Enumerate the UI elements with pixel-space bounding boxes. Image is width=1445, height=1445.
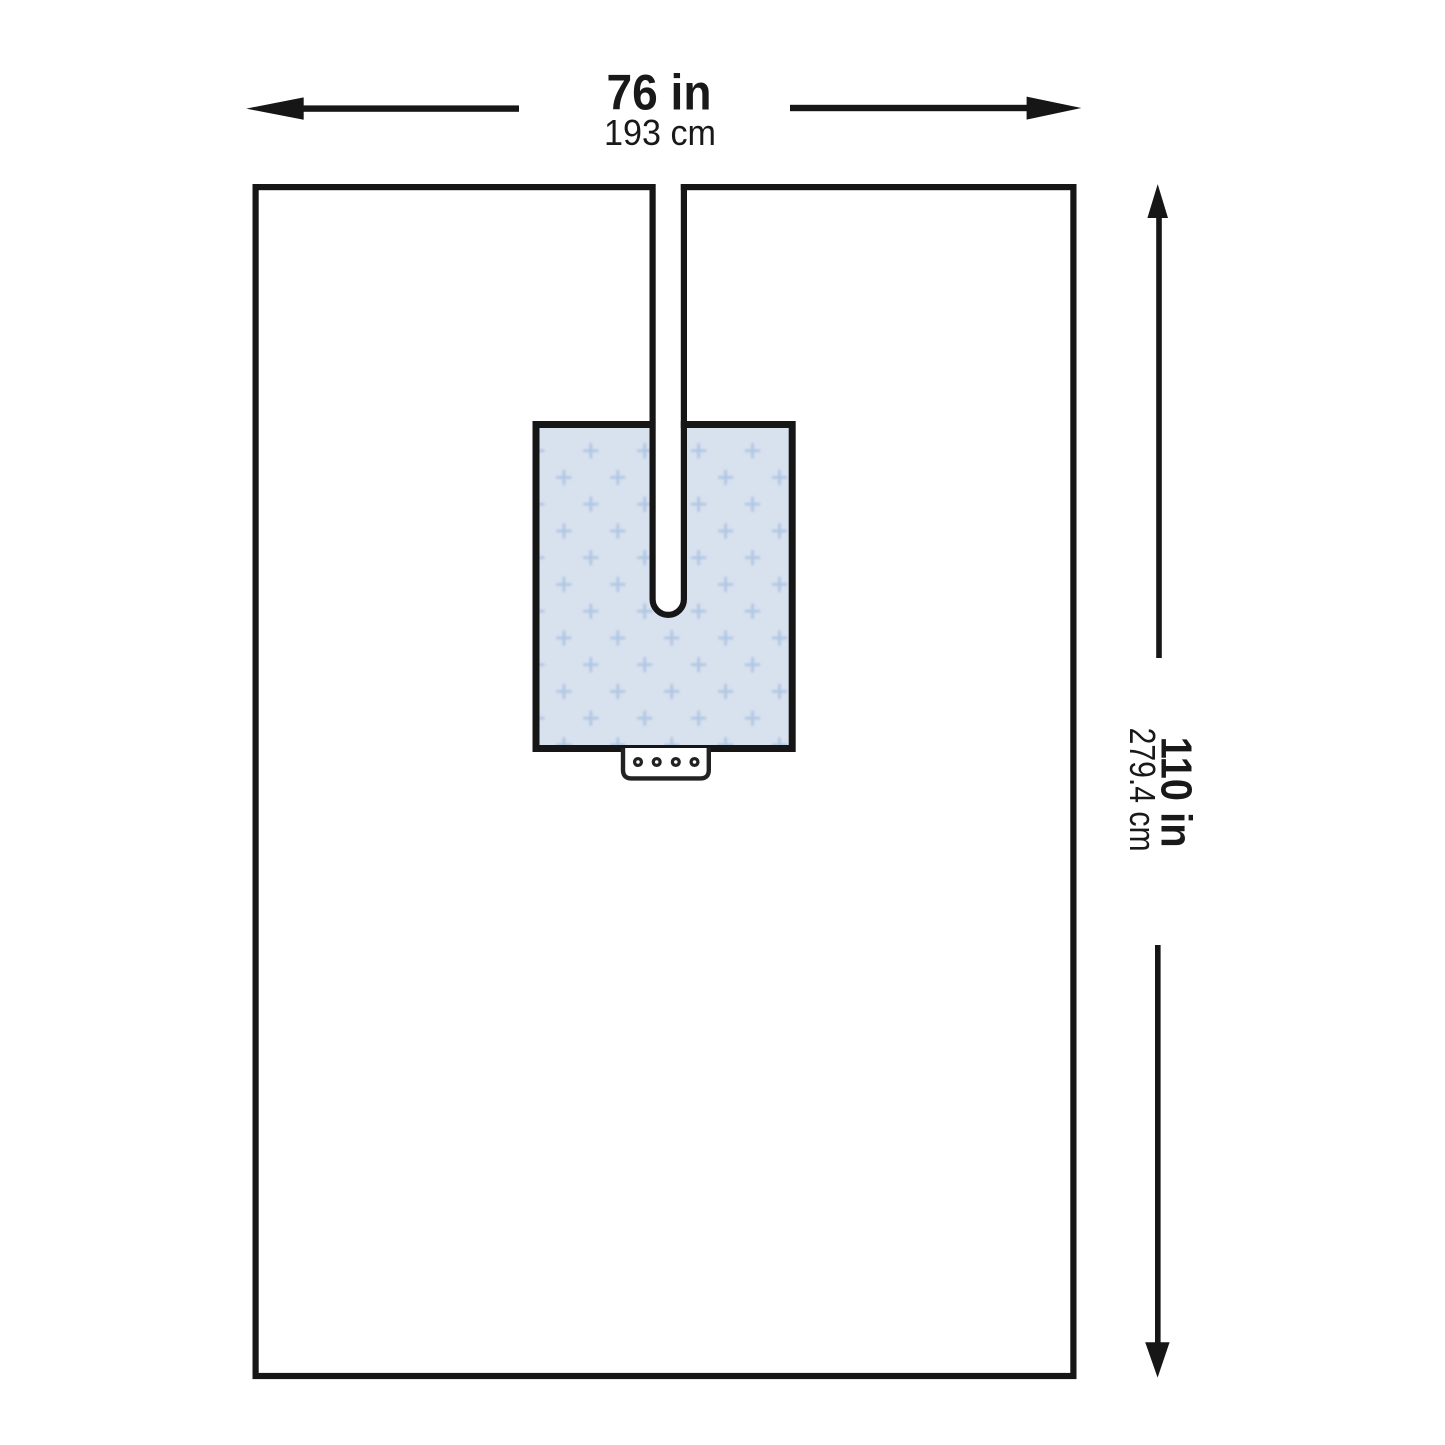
svg-text:279.4 cm: 279.4 cm xyxy=(1122,728,1163,852)
svg-text:193 cm: 193 cm xyxy=(604,112,716,153)
